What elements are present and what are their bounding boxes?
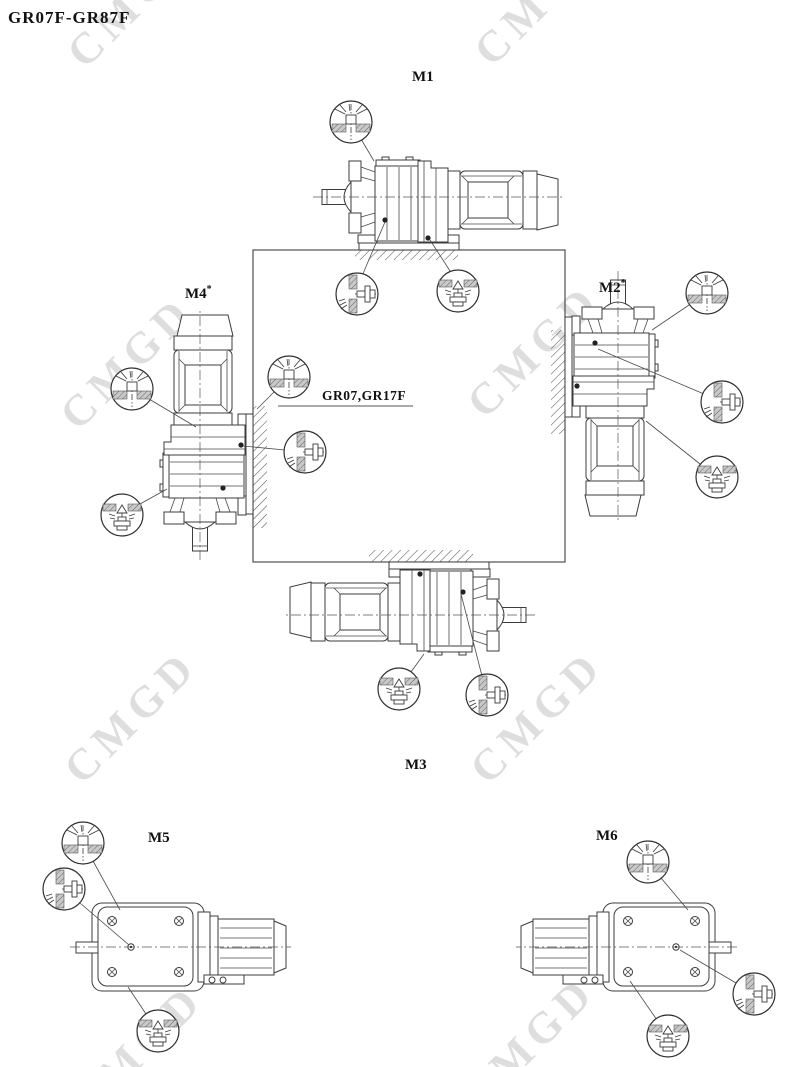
mounting-positions-diagram: CMGD CMGD CMGD CMGD CMGD CMGD CMGD CMGD (0, 0, 800, 1067)
m6-breather-valve-icon (627, 841, 669, 883)
m6-gearmotor-drawing (516, 903, 737, 991)
m4-oil-drain-plug-icon (101, 494, 143, 536)
m2-oil-level-plug-icon (701, 381, 743, 423)
m3-oil-level-plug-icon (466, 674, 508, 716)
m1-gearmotor-drawing (313, 157, 563, 250)
m4-gearmotor-drawing (160, 310, 253, 560)
watermark: CMGD (460, 640, 613, 793)
m1-oil-level-plug-icon (336, 273, 378, 315)
position-label-m5: M5 (148, 830, 170, 846)
m4-breather-valve-icon (111, 368, 153, 410)
m1-breather-valve-icon (330, 101, 372, 143)
m2-oil-drain-plug-icon (696, 456, 738, 498)
m3-gearmotor-drawing (285, 562, 535, 655)
position-label-m1: M1 (412, 69, 434, 85)
gr07-gr17f-callout: GR07,GR17F (322, 388, 406, 403)
watermark: CMGD (464, 0, 617, 75)
m6-oil-drain-plug-icon (647, 1015, 689, 1057)
gr07-gr17f-breather-valve-icon (268, 356, 310, 398)
page-title: GR07F-GR87F (8, 8, 130, 27)
position-label-m3: M3 (405, 757, 427, 773)
m4-oil-level-plug-icon (284, 431, 326, 473)
m5-oil-drain-plug-icon (137, 1010, 179, 1052)
m5-gearmotor-drawing (70, 903, 291, 991)
m5-oil-level-plug-icon (43, 868, 85, 910)
position-label-m6: M6 (596, 828, 618, 844)
m6-oil-level-plug-icon (733, 973, 775, 1015)
position-label-m4: M4* (185, 284, 212, 302)
m2-breather-valve-icon (686, 272, 728, 314)
m3-oil-drain-plug-icon (378, 668, 420, 710)
m5-breather-valve-icon (62, 822, 104, 864)
m1-oil-drain-plug-icon (437, 270, 479, 312)
watermark: CMGD (54, 640, 207, 793)
